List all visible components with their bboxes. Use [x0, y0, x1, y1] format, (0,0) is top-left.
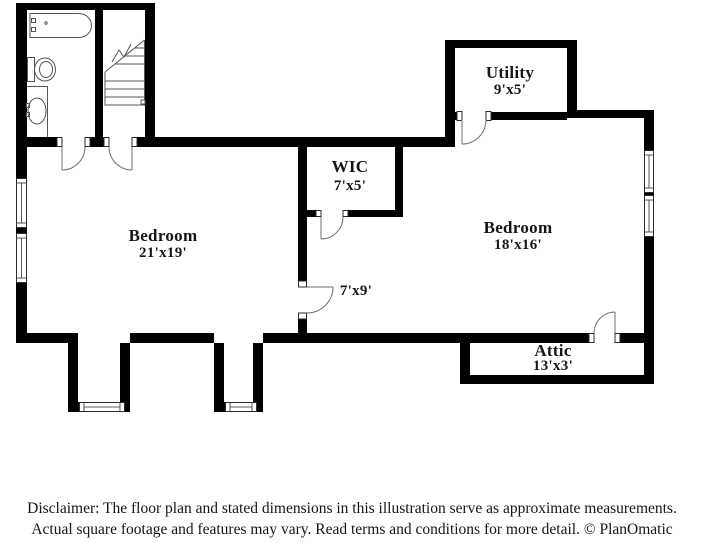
wall-segment [145, 3, 155, 147]
stair-newel [141, 100, 145, 104]
door-jamb [343, 211, 348, 217]
wall-segment [460, 375, 654, 384]
door-jamb [589, 334, 594, 343]
wall-segment [298, 147, 307, 281]
wall-segment [16, 3, 155, 10]
door-jamb [57, 138, 62, 147]
door-arc [62, 147, 85, 170]
staircase-icon [105, 40, 145, 105]
wall-segment [445, 40, 577, 48]
door-arc [462, 120, 486, 144]
wall-segment [90, 137, 104, 147]
window-icon [80, 403, 125, 412]
wall-segment [16, 137, 57, 147]
wall-segment [445, 40, 455, 147]
door-swing-icon [457, 112, 491, 145]
disclaimer-text: Disclaimer: The floor plan and stated di… [0, 498, 704, 540]
room-dims-bedroom-right: 18'x16' [494, 237, 542, 253]
room-label-wic: WIC [332, 157, 369, 176]
sink-basin [28, 98, 46, 124]
wall-segment [568, 110, 654, 118]
room-label-bedroom-right: Bedroom [484, 218, 553, 237]
window-icon [17, 234, 27, 283]
toilet-bowl-inner [40, 62, 53, 78]
door-jamb [132, 138, 137, 147]
door-arc [321, 217, 343, 239]
door-jamb [104, 138, 109, 147]
bathtub-icon [30, 14, 92, 38]
door-jamb [299, 313, 307, 319]
wall-segment [16, 3, 27, 178]
room-dims-attic: 13'x3' [533, 358, 573, 374]
wall-segment [307, 210, 316, 217]
room-dims-utility: 9'x5' [494, 82, 526, 98]
sink-vanity-icon [27, 87, 48, 138]
wall-segment [644, 237, 654, 384]
room-dims-hallway: 7'x9' [340, 283, 372, 299]
door-swing-icon [299, 281, 334, 319]
door-jamb [457, 112, 462, 121]
wall-segment [644, 110, 654, 150]
door-jamb [316, 211, 321, 217]
disclaimer-line-1: Disclaimer: The floor plan and stated di… [0, 498, 704, 519]
window-icon [645, 151, 654, 193]
door-jamb [615, 334, 620, 343]
room-labels: Bedroom 21'x19' WIC 7'x5' Utility 9'x5' … [129, 63, 573, 374]
wall-segment [120, 343, 130, 412]
door-swing-icon [589, 312, 620, 343]
room-dims-bedroom-left: 21'x19' [139, 245, 187, 261]
wall-segment [620, 333, 644, 343]
door-arc [109, 147, 132, 170]
wall-segment [95, 10, 103, 144]
floorplan-drawing: Bedroom 21'x19' WIC 7'x5' Utility 9'x5' … [0, 0, 704, 495]
stair-outline [105, 40, 145, 105]
door-swing-icon [57, 138, 90, 171]
wall-segment [130, 333, 214, 343]
room-dims-wic: 7'x5' [334, 178, 366, 194]
disclaimer-line-2: Actual square footage and features may v… [0, 519, 704, 540]
wall-segment [16, 333, 78, 343]
door-jamb [85, 138, 90, 147]
room-label-utility: Utility [486, 63, 535, 82]
bathroom-fixtures [27, 14, 92, 138]
room-label-bedroom-left: Bedroom [129, 226, 198, 245]
wall-segment [567, 40, 577, 118]
window-icon [17, 179, 27, 228]
toilet-icon [28, 58, 56, 82]
wall-segment [16, 228, 27, 233]
bathtub-outline [30, 14, 92, 38]
door-jamb [486, 112, 491, 121]
window-icon [645, 196, 654, 237]
door-arc [594, 312, 615, 333]
door-swing-icon [104, 138, 137, 171]
toilet-tank [28, 58, 35, 82]
wall-segment [348, 210, 403, 217]
door-jamb [299, 281, 307, 287]
wall-segment [253, 343, 263, 412]
wall-segment [68, 343, 78, 412]
door-arc [307, 287, 333, 313]
floorplan-canvas: Bedroom 21'x19' WIC 7'x5' Utility 9'x5' … [0, 0, 704, 543]
wall-segment [395, 147, 403, 217]
wall-segment [491, 112, 567, 120]
window-icon [226, 403, 257, 412]
wall-segment [137, 137, 455, 147]
wall-segment [214, 343, 224, 412]
door-swing-icon [316, 211, 348, 240]
